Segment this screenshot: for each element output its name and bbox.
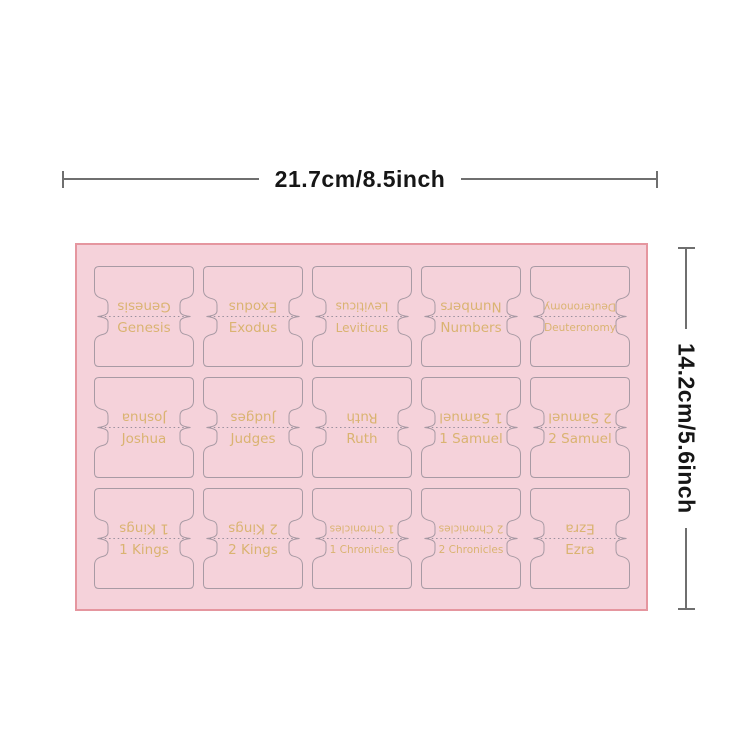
- ruler-endcap-right: [656, 171, 658, 188]
- tab-label-upright: 2 Chronicles: [439, 544, 504, 556]
- ruler-line-top: [685, 249, 687, 329]
- bible-tab-deuteronomy: DeuteronomyDeuteronomy: [530, 266, 630, 367]
- bible-tab-1-kings: 1 Kings1 Kings: [94, 488, 194, 589]
- tab-label-mirrored: Leviticus: [336, 300, 389, 314]
- tab-label-upright: 2 Kings: [228, 542, 278, 558]
- tab-label-mirrored: Judges: [230, 410, 276, 426]
- height-dimension-label: 14.2cm/5.6inch: [673, 329, 700, 528]
- bible-tab-2-kings: 2 Kings2 Kings: [203, 488, 303, 589]
- bible-tab-joshua: JoshuaJoshua: [94, 377, 194, 478]
- tab-label-mirrored: Numbers: [440, 299, 501, 315]
- tab-label-upright: 1 Samuel: [439, 431, 503, 447]
- tab-label-upright: Leviticus: [336, 321, 389, 335]
- tab-label-mirrored: 2 Kings: [228, 521, 278, 537]
- tab-label-upright: Deuteronomy: [544, 322, 616, 334]
- tab-label-upright: Exodus: [229, 320, 278, 336]
- tab-grid: GenesisGenesisExodusExodusLeviticusLevit…: [94, 266, 630, 589]
- product-diagram: 21.7cm/8.5inch 14.2cm/5.6inch GenesisGen…: [0, 0, 736, 736]
- ruler-endcap-bottom: [678, 608, 695, 610]
- bible-tab-ezra: EzraEzra: [530, 488, 630, 589]
- tab-label-mirrored: Deuteronomy: [544, 301, 616, 313]
- bible-tab-leviticus: LeviticusLeviticus: [312, 266, 412, 367]
- tab-label-mirrored: 2 Samuel: [548, 410, 612, 426]
- tab-label-upright: Judges: [229, 431, 275, 447]
- bible-tab-judges: JudgesJudges: [203, 377, 303, 478]
- height-ruler: 14.2cm/5.6inch: [671, 247, 701, 610]
- bible-tab-numbers: NumbersNumbers: [421, 266, 521, 367]
- bible-tab-ruth: RuthRuth: [312, 377, 412, 478]
- ruler-line-bottom: [685, 528, 687, 608]
- tab-label-upright: 1 Kings: [119, 542, 169, 558]
- bible-tab-1-samuel: 1 Samuel1 Samuel: [421, 377, 521, 478]
- tab-label-mirrored: Joshua: [122, 410, 168, 426]
- tab-label-mirrored: 1 Samuel: [439, 410, 503, 426]
- tab-label-mirrored: Ruth: [346, 410, 377, 426]
- sticker-sheet: GenesisGenesisExodusExodusLeviticusLevit…: [75, 243, 648, 611]
- tab-label-upright: Ezra: [565, 542, 594, 558]
- bible-tab-1-chronicles: 1 Chronicles1 Chronicles: [312, 488, 412, 589]
- width-ruler: 21.7cm/8.5inch: [62, 163, 658, 195]
- bible-tab-2-chronicles: 2 Chronicles2 Chronicles: [421, 488, 521, 589]
- width-dimension-label: 21.7cm/8.5inch: [259, 166, 462, 193]
- tab-label-upright: 1 Chronicles: [330, 544, 395, 556]
- tab-label-upright: 2 Samuel: [548, 431, 612, 447]
- ruler-line-right: [461, 178, 656, 180]
- tab-label-mirrored: Exodus: [229, 299, 278, 315]
- ruler-line-left: [64, 178, 259, 180]
- bible-tab-exodus: ExodusExodus: [203, 266, 303, 367]
- tab-label-upright: Joshua: [121, 431, 167, 447]
- tab-label-mirrored: 1 Chronicles: [330, 523, 395, 535]
- tab-label-mirrored: 2 Chronicles: [439, 523, 504, 535]
- bible-tab-2-samuel: 2 Samuel2 Samuel: [530, 377, 630, 478]
- tab-label-upright: Numbers: [440, 320, 501, 336]
- tab-label-mirrored: Ezra: [565, 521, 594, 537]
- tab-label-upright: Ruth: [346, 431, 377, 447]
- tab-label-upright: Genesis: [117, 320, 170, 336]
- tab-label-mirrored: Genesis: [117, 299, 170, 315]
- tab-label-mirrored: 1 Kings: [119, 521, 169, 537]
- bible-tab-genesis: GenesisGenesis: [94, 266, 194, 367]
